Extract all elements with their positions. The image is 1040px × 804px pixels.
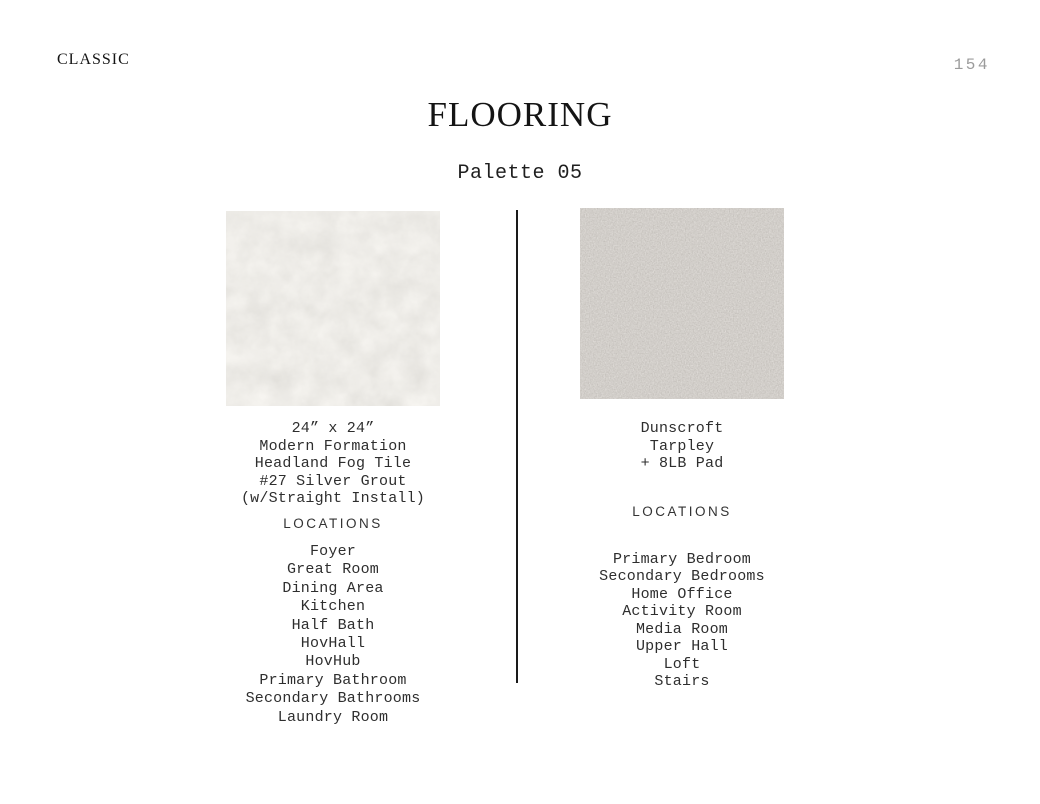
column-divider-line — [516, 210, 518, 683]
spec-line: (w/Straight Install) — [226, 490, 440, 508]
tile-locations-list: FoyerGreat RoomDining AreaKitchenHalf Ba… — [226, 543, 440, 727]
location-item: Half Bath — [226, 617, 440, 635]
carpet-spec-lines: DunscroftTarpley+ 8LB Pad — [580, 420, 784, 473]
location-item: Upper Hall — [580, 638, 784, 656]
carpet-swatch-image — [580, 208, 784, 399]
spec-line: #27 Silver Grout — [226, 473, 440, 491]
location-item: Secondary Bedrooms — [580, 568, 784, 586]
location-item: HovHub — [226, 653, 440, 671]
page-number: 154 — [954, 56, 990, 74]
location-item: Great Room — [226, 561, 440, 579]
flooring-palette-page: CLASSIC 154 FLOORING Palette 05 24” x 24… — [0, 0, 1040, 804]
location-item: Dining Area — [226, 580, 440, 598]
location-item: Loft — [580, 656, 784, 674]
location-item: Foyer — [226, 543, 440, 561]
location-item: Stairs — [580, 673, 784, 691]
carpet-texture-icon — [580, 208, 784, 399]
location-item: Media Room — [580, 621, 784, 639]
location-item: Activity Room — [580, 603, 784, 621]
spec-line: Dunscroft — [580, 420, 784, 438]
carpet-locations-heading: LOCATIONS — [580, 504, 784, 520]
location-item: Laundry Room — [226, 709, 440, 727]
spec-line: Tarpley — [580, 438, 784, 456]
carpet-locations-list: Primary BedroomSecondary BedroomsHome Of… — [580, 551, 784, 691]
spec-line: Modern Formation — [226, 438, 440, 456]
tile-spec-lines: 24” x 24”Modern FormationHeadland Fog Ti… — [226, 420, 440, 508]
spec-line: Headland Fog Tile — [226, 455, 440, 473]
page-title: FLOORING — [0, 96, 1040, 134]
location-item: Kitchen — [226, 598, 440, 616]
brand-label: CLASSIC — [57, 51, 130, 69]
location-item: Secondary Bathrooms — [226, 690, 440, 708]
tile-column: 24” x 24”Modern FormationHeadland Fog Ti… — [226, 211, 440, 727]
location-item: HovHall — [226, 635, 440, 653]
location-item: Primary Bedroom — [580, 551, 784, 569]
tile-locations-heading: LOCATIONS — [226, 516, 440, 532]
carpet-column: DunscroftTarpley+ 8LB Pad LOCATIONS Prim… — [580, 208, 784, 691]
tile-texture-icon — [226, 211, 440, 406]
spec-line: + 8LB Pad — [580, 455, 784, 473]
tile-swatch-image — [226, 211, 440, 406]
location-item: Home Office — [580, 586, 784, 604]
palette-subtitle: Palette 05 — [0, 163, 1040, 185]
spec-line: 24” x 24” — [226, 420, 440, 438]
location-item: Primary Bathroom — [226, 672, 440, 690]
